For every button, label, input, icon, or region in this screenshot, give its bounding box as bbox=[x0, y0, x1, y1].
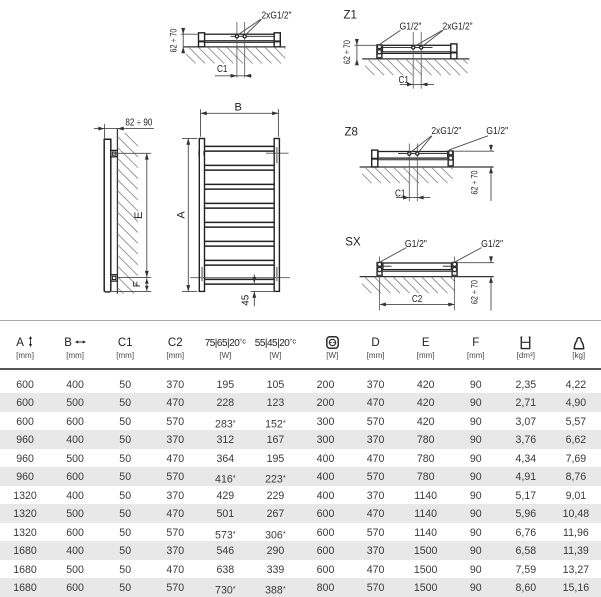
svg-text:2xG1/2": 2xG1/2" bbox=[262, 9, 292, 21]
svg-text:2xG1/2": 2xG1/2" bbox=[431, 125, 461, 137]
svg-text:G1/2": G1/2" bbox=[400, 20, 422, 32]
svg-text:F: F bbox=[132, 281, 143, 287]
svg-text:C1: C1 bbox=[399, 75, 410, 86]
svg-text:C2: C2 bbox=[412, 294, 423, 305]
svg-text:G1/2": G1/2" bbox=[486, 125, 508, 137]
svg-text:G1/2": G1/2" bbox=[481, 238, 503, 250]
svg-text:G1/2": G1/2" bbox=[405, 238, 427, 250]
svg-text:B: B bbox=[235, 102, 242, 114]
svg-text:62 ÷ 70: 62 ÷ 70 bbox=[168, 29, 179, 53]
svg-text:62 ÷ 70: 62 ÷ 70 bbox=[342, 40, 353, 64]
svg-text:Z1: Z1 bbox=[344, 10, 357, 22]
svg-text:Z8: Z8 bbox=[345, 127, 358, 139]
svg-text:82 ÷ 90: 82 ÷ 90 bbox=[125, 117, 152, 129]
svg-text:A: A bbox=[176, 211, 188, 219]
svg-text:2xG1/2": 2xG1/2" bbox=[443, 20, 473, 32]
svg-text:C1: C1 bbox=[217, 64, 228, 75]
svg-text:SX: SX bbox=[345, 236, 361, 248]
svg-text:C1: C1 bbox=[395, 189, 406, 200]
svg-text:62 ÷ 70: 62 ÷ 70 bbox=[470, 171, 481, 195]
svg-text:E: E bbox=[133, 212, 145, 219]
svg-text:62 ÷ 70: 62 ÷ 70 bbox=[470, 280, 481, 304]
svg-text:45: 45 bbox=[241, 294, 252, 305]
